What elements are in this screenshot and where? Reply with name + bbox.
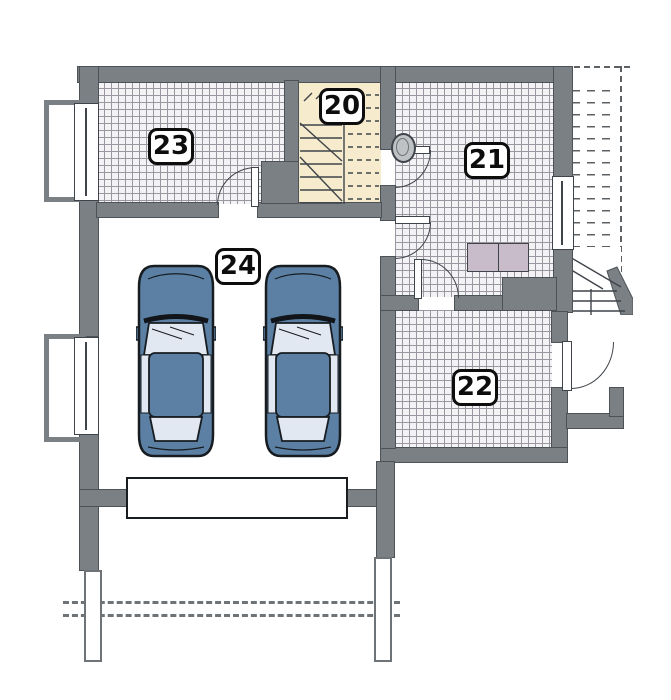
window-garage [74, 337, 99, 435]
wall-room23-bottom-right [258, 203, 381, 217]
room-label-22: 22 [452, 369, 498, 406]
wall-porch-bottom [567, 414, 623, 428]
garage-door [126, 477, 348, 519]
wall-garage-hall [381, 257, 395, 448]
wall-21-22-left [381, 296, 418, 310]
driveway-dashed-line-1 [63, 601, 400, 604]
wall-right-upper [554, 67, 572, 178]
room-label-24: 24 [215, 248, 261, 285]
wall-porch-stub [610, 388, 623, 416]
driveway-post-left [84, 570, 102, 662]
room-label-23: 23 [148, 128, 194, 165]
window-room21 [552, 176, 574, 250]
driveway-dashed-line-2 [63, 614, 400, 617]
wall-garage-right-lower [377, 462, 394, 557]
boiler-fixture [391, 133, 416, 163]
appliance-left [467, 243, 499, 272]
wall-top [78, 67, 572, 82]
wall-room23-corner-block [262, 162, 298, 203]
wall-room22-bottom [381, 448, 567, 462]
wall-right-middle [554, 246, 572, 312]
wall-21-22-block [503, 278, 556, 310]
floor-plan: 20 21 22 23 24 [0, 0, 671, 700]
wall-hall-upper [381, 186, 395, 220]
room-label-21: 21 [464, 142, 510, 179]
appliance-right [498, 243, 529, 272]
wall-21-22-right [455, 296, 503, 310]
window-room23 [74, 103, 99, 201]
car-top-view-left [136, 263, 216, 459]
wall-stairwell-right [381, 67, 395, 149]
wall-room23-bottom-left [97, 203, 218, 217]
door-leaf-room23 [251, 167, 259, 207]
driveway-post-right [374, 557, 392, 662]
room-label-20: 20 [319, 88, 365, 125]
wall-room22-right-upper [552, 312, 567, 342]
car-top-view-right [263, 263, 343, 459]
wall-left-middle [80, 199, 98, 336]
